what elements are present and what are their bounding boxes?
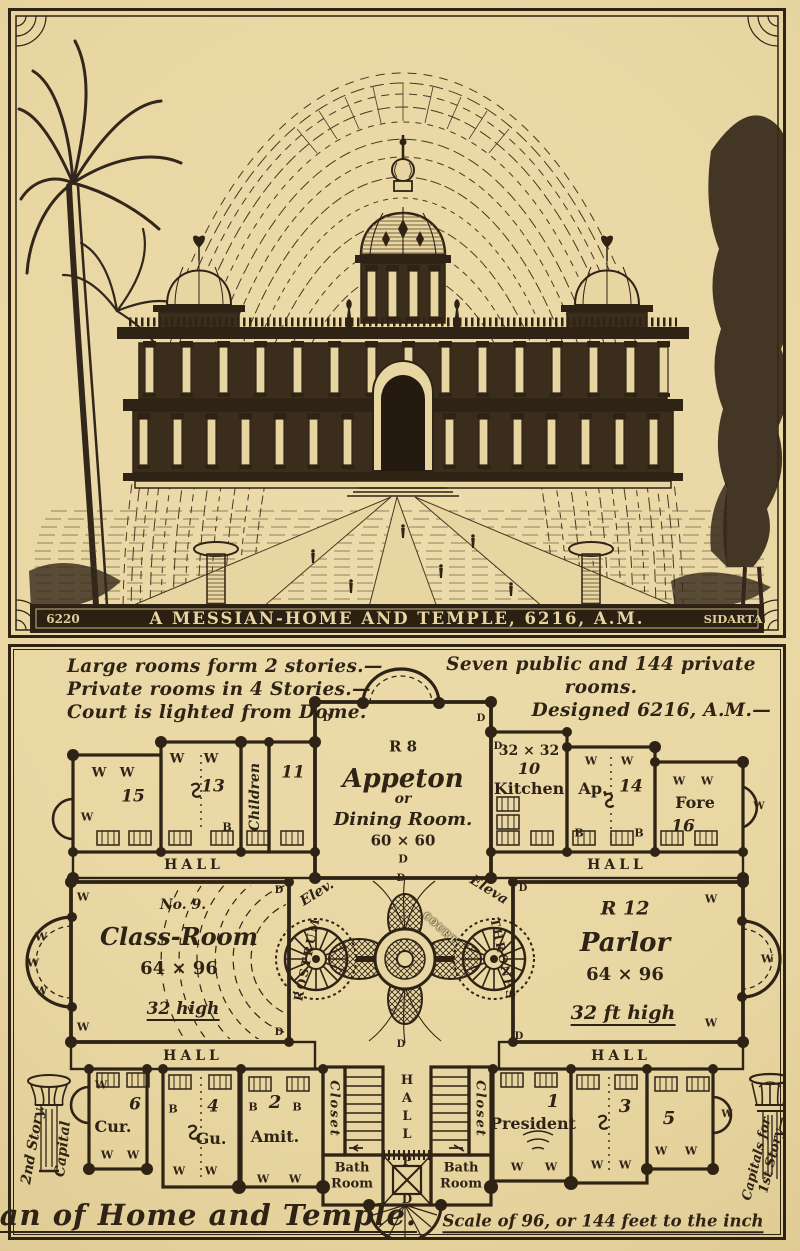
window-marker: W <box>585 756 597 767</box>
window-marker: W <box>101 1150 113 1161</box>
garden <box>29 497 771 611</box>
cur-name: Cur. <box>95 1119 132 1135</box>
window-marker: W <box>81 812 93 823</box>
stove-mark <box>192 784 200 797</box>
window-marker: W <box>673 776 685 787</box>
window-marker: W <box>511 1162 523 1173</box>
classroom-number: No. 9. <box>160 898 206 912</box>
door-marker: D <box>397 1040 406 1050</box>
tree <box>708 115 783 623</box>
appeton-name: Appeton <box>342 766 463 792</box>
appeton-r-number: R 8 <box>389 740 417 755</box>
window-marker: W <box>761 954 773 965</box>
closet-right-label: Closet <box>474 1080 487 1138</box>
book-page: 6220 A MESSIAN-HOME AND TEMPLE, 6216, A.… <box>0 0 800 1251</box>
kitchen-dims: 32 × 32 <box>499 744 559 758</box>
plan-caption-title: Plan of Home and Temple. <box>0 1201 417 1233</box>
floor-plan-panel: Large rooms form 2 stories.— Private roo… <box>8 644 786 1240</box>
window-marker: W <box>705 894 717 905</box>
bed-marker: B <box>248 1102 257 1113</box>
classroom-name: Class-Room <box>100 925 258 949</box>
window-marker: W <box>621 756 633 767</box>
room-11-number: 11 <box>281 765 305 782</box>
window-marker: W <box>77 1022 89 1033</box>
ap14-number: 14 <box>619 779 643 796</box>
kitchen-number: 10 <box>518 761 540 777</box>
bath-room-left-label: Bath <box>335 1162 370 1175</box>
parlor-height: 32 ft high <box>571 1004 676 1026</box>
appeton-type: Dining Room. <box>334 811 473 829</box>
window-marker: W <box>655 1146 667 1157</box>
note-line: Court is lighted from Dome. <box>67 701 383 724</box>
gu-number: 4 <box>207 1099 219 1116</box>
bath-room-right-label: Bath <box>444 1162 479 1175</box>
bath-room-left-label: Room <box>331 1178 373 1191</box>
window-marker: W <box>173 1166 185 1177</box>
children-room-label: Children <box>248 763 262 831</box>
window-marker: W <box>35 986 47 997</box>
banner-title: A MESSIAN-HOME AND TEMPLE, 6216, A.M. <box>149 609 645 628</box>
window-marker: W <box>35 932 47 943</box>
window-marker: W <box>205 1166 217 1177</box>
window-marker: W <box>27 958 39 969</box>
window-marker: W <box>257 1174 269 1185</box>
room-15-number: 15 <box>121 789 145 806</box>
window-marker: W <box>591 1160 603 1171</box>
parlor-r-number: R 12 <box>601 900 650 919</box>
door-marker: D <box>323 714 332 724</box>
bed-marker: B <box>292 1102 301 1113</box>
hall-label: HALL <box>587 858 647 872</box>
window-marker: W <box>92 767 107 780</box>
window-marker: W <box>753 802 764 812</box>
window-marker: W <box>289 1174 301 1185</box>
closet-left-label: Closet <box>328 1080 341 1138</box>
porch-p-label: P <box>402 1155 411 1167</box>
window-marker: W <box>685 1146 697 1157</box>
president-arcs <box>523 1131 553 1149</box>
banner: 6220 A MESSIAN-HOME AND TEMPLE, 6216, A.… <box>31 605 763 632</box>
door-marker: D <box>275 886 284 896</box>
window-marker: W <box>95 1080 107 1091</box>
window-marker: W <box>77 892 89 903</box>
window-marker: W <box>120 767 135 780</box>
bed-marker: B <box>634 828 643 839</box>
fore-name: Fore <box>675 795 715 811</box>
gu-name: Gu. <box>196 1131 227 1147</box>
amit-number: 2 <box>269 1094 282 1112</box>
note-line: Large rooms form 2 stories.— <box>67 655 383 678</box>
door-marker: D <box>519 884 528 894</box>
door-marker: D <box>515 1032 524 1042</box>
door-marker: D <box>397 874 406 884</box>
door-marker: D <box>477 714 486 724</box>
room-13-number: 13 <box>201 779 225 796</box>
note-line: Seven public and 144 private <box>431 653 771 676</box>
president-number: 1 <box>547 1093 560 1111</box>
window-marker: W <box>127 1150 139 1161</box>
window-marker: W <box>170 753 185 766</box>
parlor-dims: 64 × 96 <box>586 966 664 984</box>
temple-building <box>117 135 689 496</box>
hall-label: HALL <box>163 1049 223 1063</box>
notes-left: Large rooms form 2 stories.— Private roo… <box>67 655 383 724</box>
hall-label: HALL <box>164 858 224 872</box>
president-name: President <box>490 1116 576 1132</box>
classroom-dims: 64 × 96 <box>140 960 218 978</box>
bed-marker: B <box>168 1104 177 1115</box>
window-marker: W <box>705 1018 717 1029</box>
parlor-name: Parlor <box>580 930 670 956</box>
window-marker: W <box>721 1110 732 1120</box>
bed-marker: B <box>574 828 583 839</box>
window-marker: W <box>204 753 219 766</box>
door-marker: D <box>275 1028 284 1038</box>
notes-right: Seven public and 144 private rooms. Desi… <box>431 653 771 722</box>
fore-number: 16 <box>671 819 695 836</box>
bath-room-right-label: Room <box>440 1178 482 1191</box>
window-marker: W <box>545 1162 557 1173</box>
stove-mark <box>599 1116 607 1129</box>
appeton-or: or <box>395 792 412 806</box>
banner-left-code: 6220 <box>46 612 79 626</box>
hall-label: HALL <box>591 1049 651 1063</box>
note-line: rooms. <box>431 676 771 699</box>
ap14-name: Ap. <box>578 781 607 797</box>
hall-vertical-label: HALL <box>401 1073 414 1145</box>
window-marker: W <box>619 1160 631 1171</box>
kitchen-name: Kitchen <box>494 781 565 797</box>
window-marker: W <box>701 776 713 787</box>
appeton-dims: 60 × 60 <box>371 834 436 849</box>
door-marker: D <box>494 742 503 752</box>
banner-right-code: SIDARTA <box>704 612 764 626</box>
bed-marker: B <box>222 822 231 833</box>
door-marker: D <box>398 854 408 865</box>
temple-engraving: 6220 A MESSIAN-HOME AND TEMPLE, 6216, A.… <box>11 11 783 635</box>
cur-number: 6 <box>129 1097 141 1114</box>
amit-name: Amit. <box>251 1129 299 1145</box>
temple-engraving-frame: 6220 A MESSIAN-HOME AND TEMPLE, 6216, A.… <box>8 8 786 638</box>
room-3-number: 3 <box>619 1098 632 1116</box>
plan-caption-scale: Scale of 96, or 144 feet to the inch <box>442 1213 763 1233</box>
note-line: Private rooms in 4 Stories.— <box>67 678 383 701</box>
room-5-number: 5 <box>663 1110 676 1128</box>
classroom-height: 32 high <box>147 1001 220 1021</box>
